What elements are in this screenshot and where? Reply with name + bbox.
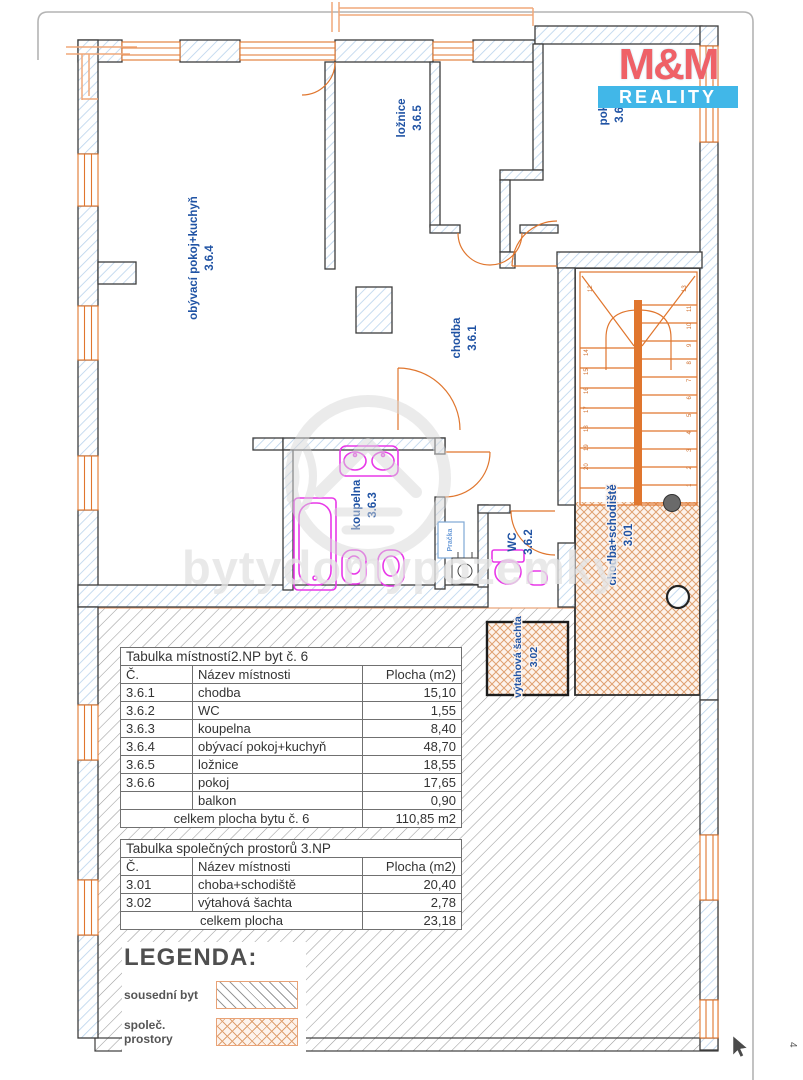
diagonal-hatch-swatch xyxy=(216,981,298,1009)
svg-text:16: 16 xyxy=(584,387,590,394)
svg-text:14: 14 xyxy=(584,349,590,356)
table-row: 3.02výtahová šachta2,78 xyxy=(121,894,462,912)
room-label-wc: WC xyxy=(507,532,519,551)
svg-text:3.6.1: 3.6.1 xyxy=(467,325,479,351)
rooms-table: Tabulka místností2.NP byt č. 6 Č. Název … xyxy=(120,647,462,828)
logo-reality-band: REALITY xyxy=(598,86,738,108)
table-row: 3.6.4obývací pokoj+kuchyň48,70 xyxy=(121,738,462,756)
table-row: 3.6.1chodba15,10 xyxy=(121,684,462,702)
svg-text:11: 11 xyxy=(687,305,693,312)
washer-label: Pračka xyxy=(447,528,454,551)
svg-text:10: 10 xyxy=(687,322,693,329)
table-row: balkon0,90 xyxy=(121,792,462,810)
table-header: Č. Název místnosti Plocha (m2) xyxy=(121,858,462,876)
mm-reality-logo: M&M REALITY xyxy=(598,44,738,108)
table-title: Tabulka společných prostorů 3.NP xyxy=(121,840,462,858)
stair-step-number: 12 xyxy=(588,285,594,292)
room-label-vytah: výtahová šachta xyxy=(512,616,524,698)
crosshatch-swatch xyxy=(216,1018,298,1046)
svg-text:3.02: 3.02 xyxy=(528,647,540,668)
table-title: Tabulka místností2.NP byt č. 6 xyxy=(121,648,462,666)
svg-text:3.01: 3.01 xyxy=(623,523,635,546)
table-row: 3.01choba+schodiště20,40 xyxy=(121,876,462,894)
logo-mm-text: M&M xyxy=(598,44,738,86)
room-label-loznice: ložnice xyxy=(396,99,408,138)
svg-text:18: 18 xyxy=(584,425,590,432)
stair-step-number: 13 xyxy=(682,285,688,292)
page-number: 4 xyxy=(787,1042,798,1048)
svg-text:3.6.2: 3.6.2 xyxy=(523,529,535,555)
room-label-chodba: chodba xyxy=(451,317,463,358)
table-total-row: celkem plocha 23,18 xyxy=(121,912,462,930)
room-label-obyvaci: obývací pokoj+kuchyň xyxy=(188,196,200,320)
svg-text:15: 15 xyxy=(584,368,590,375)
svg-text:20: 20 xyxy=(584,463,590,470)
svg-text:3.6.4: 3.6.4 xyxy=(204,245,216,271)
legend-item-neighbor: sousední byt xyxy=(124,981,298,1009)
svg-text:19: 19 xyxy=(584,444,590,451)
svg-text:3.6.5: 3.6.5 xyxy=(412,105,424,131)
table-total-row: celkem plocha bytu č. 6 110,85 m2 xyxy=(121,810,462,828)
legend: LEGENDA: sousední byt společ. prostory xyxy=(122,942,306,1056)
legend-title: LEGENDA: xyxy=(124,944,298,972)
table-row: 3.6.6pokoj17,65 xyxy=(121,774,462,792)
floor-plan-page: { "page": {"number": "4"}, "logo": {"top… xyxy=(0,0,803,1080)
table-row: 3.6.2WC1,55 xyxy=(121,702,462,720)
legend-item-common: společ. prostory xyxy=(124,1018,298,1046)
room-label-koupelna: koupelna xyxy=(351,479,363,530)
common-spaces-table: Tabulka společných prostorů 3.NP Č. Náze… xyxy=(120,839,462,930)
room-label-schodiste: chodba+schodiště xyxy=(607,484,619,585)
table-row: 3.6.5ložnice18,55 xyxy=(121,756,462,774)
table-row: 3.6.3koupelna8,40 xyxy=(121,720,462,738)
mouse-cursor xyxy=(733,1036,747,1057)
svg-text:17: 17 xyxy=(584,406,590,413)
table-header: Č. Název místnosti Plocha (m2) xyxy=(121,666,462,684)
